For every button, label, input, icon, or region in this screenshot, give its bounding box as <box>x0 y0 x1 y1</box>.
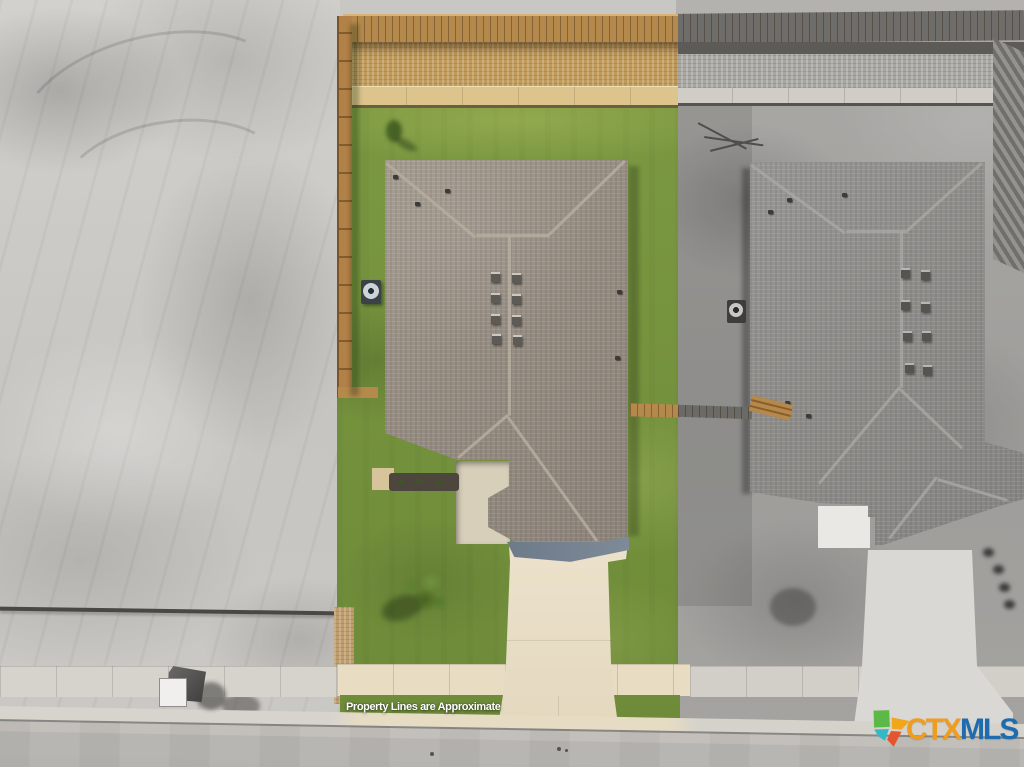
roof-vent <box>901 268 910 278</box>
utility-shed-front <box>159 678 187 707</box>
roof-vent <box>512 315 521 325</box>
roof-pipe <box>806 414 811 418</box>
aerial-photo: Property Lines are Approximate CTX MLS <box>0 0 1024 767</box>
driveway-joint <box>506 640 612 641</box>
back-fence <box>343 14 678 42</box>
logo-ctx-text: CTX <box>906 709 960 751</box>
roof-vent <box>905 363 914 373</box>
retaining-wall <box>350 86 678 108</box>
texas-logo-icon <box>868 708 913 752</box>
roof-pipe <box>768 210 773 214</box>
shrub <box>999 583 1010 592</box>
roof-vent <box>513 335 522 345</box>
roof-vent <box>491 293 500 303</box>
neighbor-porch-walkway <box>818 506 870 548</box>
neighbor-gravel-bed <box>676 54 1024 88</box>
ac-fan <box>363 283 379 299</box>
roof-pipe <box>617 290 622 294</box>
road-debris <box>430 752 434 756</box>
flower-bed <box>389 473 459 491</box>
house-shadow-east <box>628 166 639 536</box>
shrub <box>1004 600 1015 609</box>
road-debris <box>557 747 561 751</box>
watermark-text: Property Lines are Approximate <box>346 701 500 713</box>
roof-ridge <box>508 236 511 416</box>
neighbor-retaining-wall <box>676 88 1024 106</box>
side-yard-fence-shaded <box>678 405 752 420</box>
roof-pipe <box>393 175 398 179</box>
shrub <box>993 565 1004 574</box>
roof-vent <box>512 273 521 283</box>
yard-debris-patch <box>770 588 816 626</box>
roof-vent <box>922 331 931 341</box>
road-debris <box>565 749 568 752</box>
roof-vent <box>492 334 501 344</box>
roof-vent <box>491 314 500 324</box>
roof-pipe <box>415 202 420 206</box>
roof-vent <box>921 270 930 280</box>
side-yard-fence <box>630 403 680 417</box>
side-yard-shade <box>676 106 752 606</box>
roof-vent <box>491 272 500 282</box>
front-yard-tree <box>399 568 451 620</box>
brand-logo: CTX MLS <box>869 709 1017 751</box>
roof-pipe <box>787 198 792 202</box>
neighbor-roof-ridge <box>846 230 908 233</box>
neighbor-side-fence <box>993 38 1024 273</box>
roof-vent <box>903 331 912 341</box>
fence-shadow <box>350 24 359 396</box>
roof-pipe <box>842 193 847 197</box>
shrub <box>983 548 994 557</box>
logo-mls-text: MLS <box>960 709 1017 751</box>
roof-vent <box>901 300 910 310</box>
back-gravel-bed <box>352 40 678 88</box>
roof-ridge <box>476 234 550 237</box>
roof-pipe <box>445 189 450 193</box>
roof-pipe <box>615 356 620 360</box>
roof-vent <box>921 302 930 312</box>
neighbor-back-fence <box>676 10 1024 44</box>
neighbor-ac-fan <box>729 303 743 317</box>
neighbor-eave-shadow <box>742 168 751 494</box>
roof-vent <box>923 365 932 375</box>
roof-vent <box>512 294 521 304</box>
